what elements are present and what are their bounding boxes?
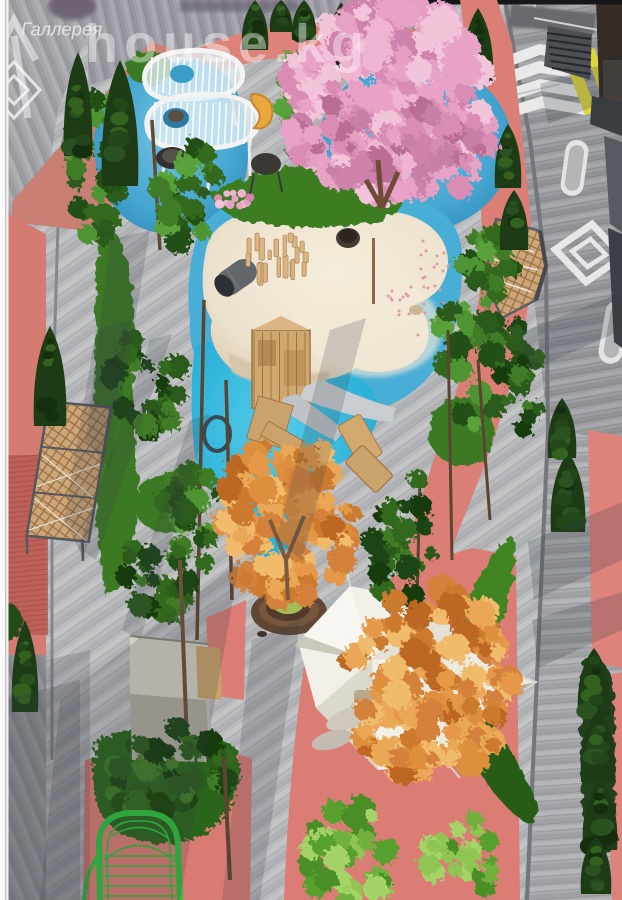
svg-text:house.kg: house.kg bbox=[85, 14, 370, 74]
